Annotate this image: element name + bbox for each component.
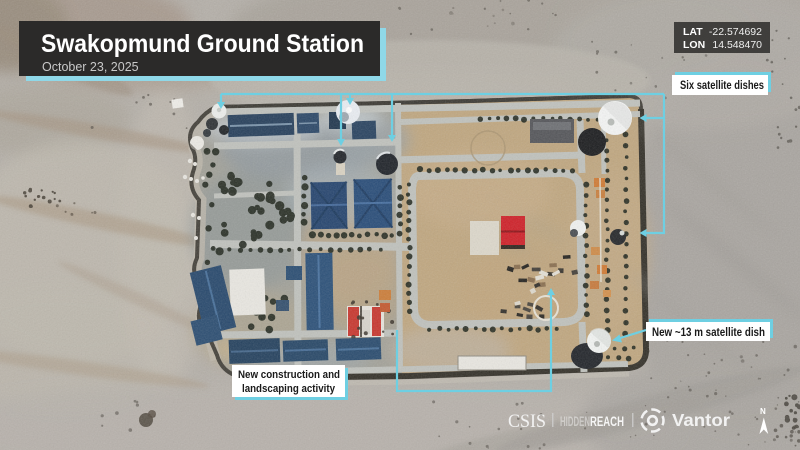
svg-text:REACH: REACH <box>590 414 624 429</box>
svg-text:New construction and: New construction and <box>238 369 340 381</box>
svg-text:Swakopmund Ground Station: Swakopmund Ground Station <box>41 30 364 58</box>
svg-text:Six satellite dishes: Six satellite dishes <box>680 80 764 92</box>
svg-text:New ~13 m satellite dish: New ~13 m satellite dish <box>652 327 765 339</box>
svg-text:N: N <box>760 407 766 416</box>
svg-text:CSIS: CSIS <box>508 411 546 432</box>
svg-text:-22.574692: -22.574692 <box>709 26 762 38</box>
svg-text:HIDDEN: HIDDEN <box>560 414 590 429</box>
svg-text:LAT: LAT <box>683 26 703 38</box>
svg-text:landscaping activity: landscaping activity <box>242 383 336 395</box>
svg-text:14.548470: 14.548470 <box>712 39 762 51</box>
svg-text:LON: LON <box>683 39 705 51</box>
svg-text:October 23, 2025: October 23, 2025 <box>42 60 139 74</box>
svg-text:Vantor: Vantor <box>672 410 730 430</box>
